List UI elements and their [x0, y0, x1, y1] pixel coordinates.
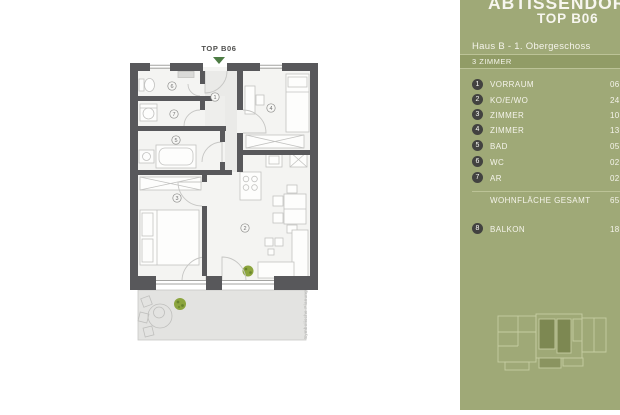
total-area-value: 65,1 [610, 196, 620, 205]
room-area: 18,2 [610, 225, 620, 234]
key-plan [493, 308, 620, 380]
room-area: 02,5 [610, 174, 620, 183]
svg-text:5: 5 [174, 138, 177, 144]
room-area: 05,1 [610, 142, 620, 151]
room-badge-3: 3 [173, 194, 181, 202]
floor-plan-svg: TOP B06 Symbolische Planung [0, 0, 460, 410]
svg-text:4: 4 [269, 106, 272, 112]
room-badge-4: 4 [267, 104, 275, 112]
room-area: 10,9 [610, 111, 620, 120]
room-area: 13,8 [610, 126, 620, 135]
divider [472, 191, 620, 192]
room-label: BAD [490, 142, 508, 151]
room-label: VORRAUM [490, 80, 534, 89]
room-label: ZIMMER [490, 111, 524, 120]
info-panel: ABTISSENDORF TOP B06 Haus B - 1. Oberges… [460, 0, 620, 410]
svg-text:2: 2 [243, 226, 246, 232]
category-band: 3 ZIMMER [460, 55, 620, 69]
room-label: WC [490, 158, 504, 167]
floor-plan: TOP B06 Symbolische Planung [0, 0, 460, 410]
balcony: Symbolische Planung [138, 290, 308, 340]
house-floor-subtitle: Haus B - 1. Obergeschoss [472, 41, 591, 52]
room-badge-6: 6 [168, 82, 176, 90]
room-area: 06,3 [610, 80, 620, 89]
room-number-badge: 5 [472, 140, 483, 151]
svg-text:1: 1 [213, 95, 216, 101]
total-area-row: WOHNFLÄCHE GESAMT 65,1 [472, 195, 620, 206]
svg-text:7: 7 [172, 112, 175, 118]
room-row-zimmer3: 3 ZIMMER 10,9 [472, 109, 620, 120]
room-number-badge: 3 [472, 109, 483, 120]
room-row-balkon: 8 BALKON 18,2 [472, 223, 620, 234]
room-label: KO/E/WO [490, 96, 528, 105]
room-number-badge: 4 [472, 124, 483, 135]
plan-watermark: Symbolische Planung [303, 290, 308, 339]
room-number-badge: 1 [472, 79, 483, 90]
room-row-wc: 6 WC 02,2 [472, 156, 620, 167]
svg-text:6: 6 [170, 84, 173, 90]
room-label: AR [490, 174, 502, 183]
entrance-arrow-icon [213, 57, 225, 64]
room-badge-2: 2 [241, 224, 249, 232]
room-row-ar: 7 AR 02,5 [472, 172, 620, 183]
room-number-badge: 6 [472, 156, 483, 167]
room-area: 24,1 [610, 96, 620, 105]
svg-text:3: 3 [175, 196, 178, 202]
room-badge-7: 7 [170, 110, 178, 118]
room-label: BALKON [490, 225, 525, 234]
room-badge-1: 1 [211, 93, 219, 101]
room-row-vorraum: 1 VORRAUM 06,3 [472, 79, 620, 90]
room-number-badge: 7 [472, 172, 483, 183]
ar-washer [140, 104, 157, 121]
balcony-plant-icon [174, 298, 186, 310]
category-label: 3 ZIMMER [460, 55, 620, 68]
bedroom3-furniture [140, 177, 201, 265]
plan-top-label: TOP B06 [201, 44, 236, 53]
total-area-label: WOHNFLÄCHE GESAMT [490, 196, 591, 205]
room-row-bad: 5 BAD 05,1 [472, 140, 620, 151]
room-badge-5: 5 [172, 136, 180, 144]
room-number-badge: 8 [472, 223, 483, 234]
room-area: 02,2 [610, 158, 620, 167]
room-number-badge: 2 [472, 94, 483, 105]
unit-title: TOP B06 [537, 11, 598, 26]
room-row-koewo: 2 KO/E/WO 24,1 [472, 94, 620, 105]
room-row-zimmer4: 4 ZIMMER 13,8 [472, 124, 620, 135]
room-label: ZIMMER [490, 126, 524, 135]
